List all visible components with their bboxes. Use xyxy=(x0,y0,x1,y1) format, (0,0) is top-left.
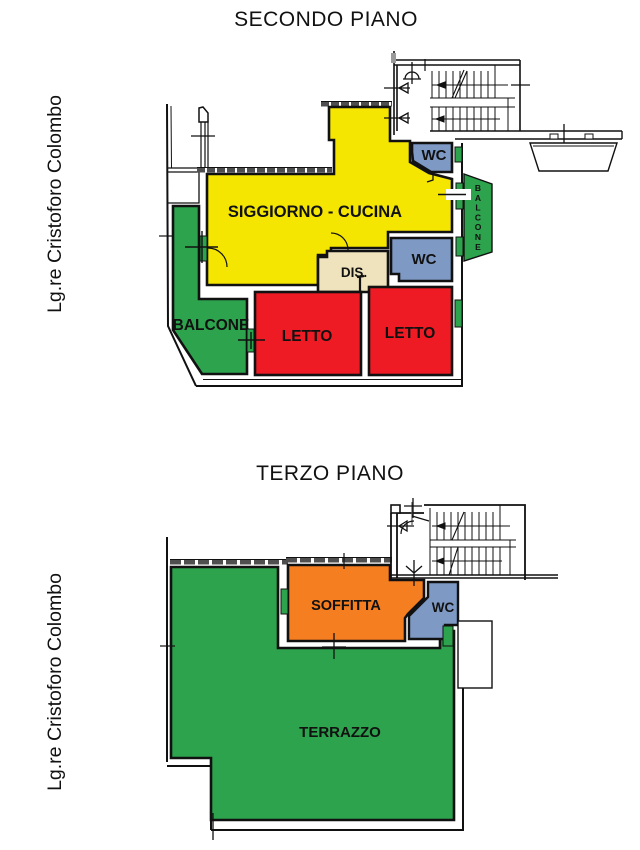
svg-text:WC: WC xyxy=(422,147,447,164)
svg-text:N: N xyxy=(475,232,481,242)
svg-text:LETTO: LETTO xyxy=(385,325,436,342)
svg-text:O: O xyxy=(475,222,482,232)
svg-text:A: A xyxy=(475,193,481,203)
svg-text:L: L xyxy=(475,203,480,213)
svg-text:WC: WC xyxy=(432,600,455,615)
svg-text:TERZO PIANO: TERZO PIANO xyxy=(256,462,404,485)
svg-text:C: C xyxy=(475,212,481,222)
svg-text:WC: WC xyxy=(412,251,437,268)
svg-text:SIGGIORNO - CUCINA: SIGGIORNO - CUCINA xyxy=(228,203,402,221)
svg-text:LETTO: LETTO xyxy=(282,328,333,345)
svg-text:BALCONE: BALCONE xyxy=(173,317,250,334)
svg-text:DIS.: DIS. xyxy=(341,265,367,280)
svg-text:SECONDO PIANO: SECONDO PIANO xyxy=(234,8,418,31)
svg-text:SOFFITTA: SOFFITTA xyxy=(311,598,381,614)
svg-text:Lg.re Cristoforo Colombo: Lg.re Cristoforo Colombo xyxy=(44,573,66,791)
svg-text:E: E xyxy=(475,242,481,252)
svg-text:TERRAZZO: TERRAZZO xyxy=(299,724,381,741)
svg-text:Lg.re Cristoforo Colombo: Lg.re Cristoforo Colombo xyxy=(44,95,66,313)
svg-text:B: B xyxy=(475,183,481,193)
